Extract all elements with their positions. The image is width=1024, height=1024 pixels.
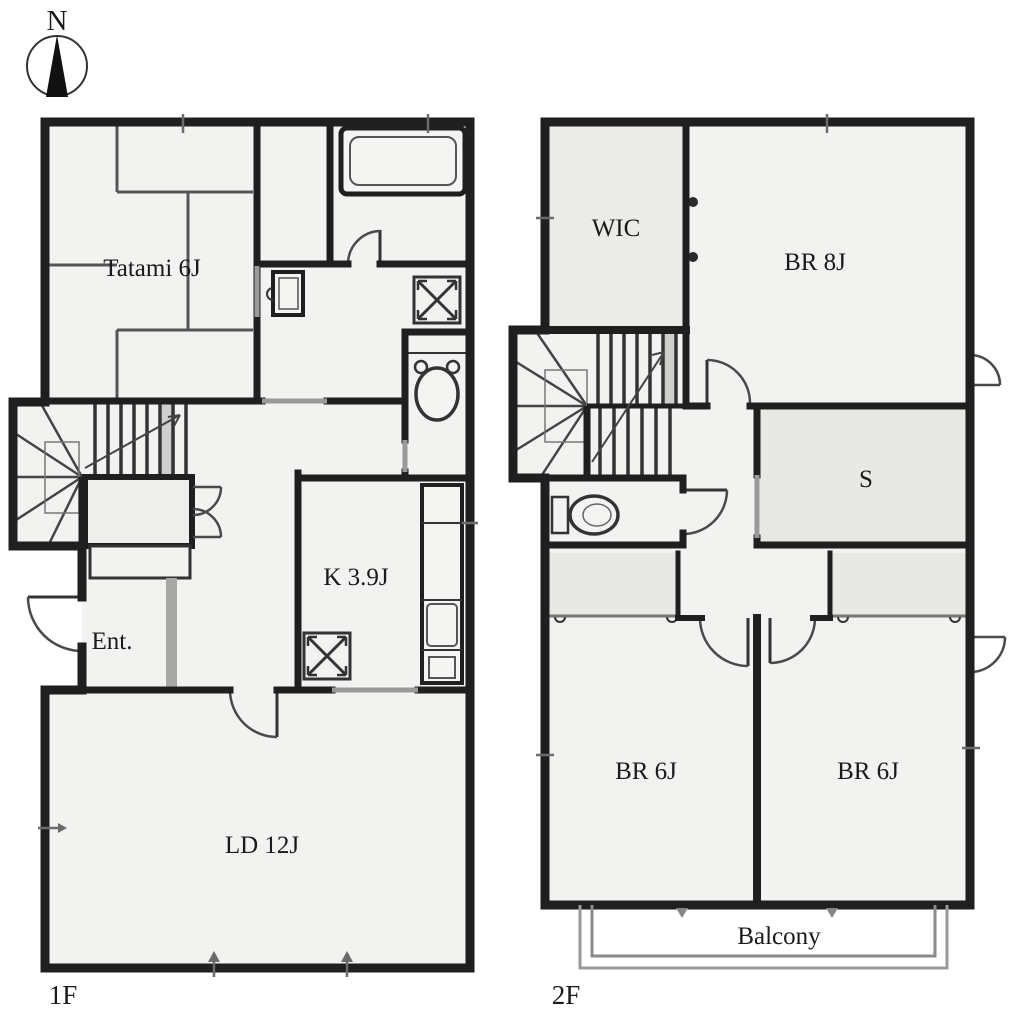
room-label-tatami: Tatami 6J bbox=[103, 255, 201, 282]
hall-closet bbox=[85, 477, 192, 546]
floor-2-plan: WIC BR 8J S BR 6J BR 6J Balcony 2F bbox=[513, 114, 1005, 1010]
room-label-living-dining: LD 12J bbox=[225, 832, 300, 859]
room-label-entrance: Ent. bbox=[92, 628, 133, 655]
room-label-bedroom-8j: BR 8J bbox=[784, 249, 846, 276]
room-label-storage: S bbox=[859, 466, 873, 493]
compass-needle-icon bbox=[46, 35, 68, 97]
closet-left-area bbox=[548, 553, 678, 616]
shoe-cabinet bbox=[90, 546, 190, 578]
floor-1-label: 1F bbox=[49, 980, 78, 1010]
washbasin bbox=[267, 272, 303, 315]
room-label-bedroom-6j-left: BR 6J bbox=[615, 758, 677, 785]
kitchen-counter bbox=[422, 485, 462, 683]
bathtub bbox=[341, 128, 465, 194]
right-wall-window-arcs bbox=[970, 355, 1005, 672]
room-label-balcony: Balcony bbox=[737, 923, 821, 950]
room-label-kitchen: K 3.9J bbox=[323, 564, 389, 591]
room-label-bedroom-6j-right: BR 6J bbox=[837, 758, 899, 785]
floor-plan-page: N bbox=[0, 0, 1024, 1024]
room-label-wic: WIC bbox=[592, 215, 641, 242]
entrance-step-strip bbox=[166, 578, 177, 690]
floor-2-label: 2F bbox=[552, 980, 581, 1010]
compass: N bbox=[27, 5, 87, 97]
compass-north-label: N bbox=[47, 5, 68, 37]
closet-right-area bbox=[830, 553, 967, 616]
floor-plan-drawing: N bbox=[0, 0, 1024, 1024]
floor-1-plan: Tatami 6J K 3.9J Ent. LD 12J 1F bbox=[13, 114, 478, 1010]
front-door-arc bbox=[28, 597, 82, 651]
